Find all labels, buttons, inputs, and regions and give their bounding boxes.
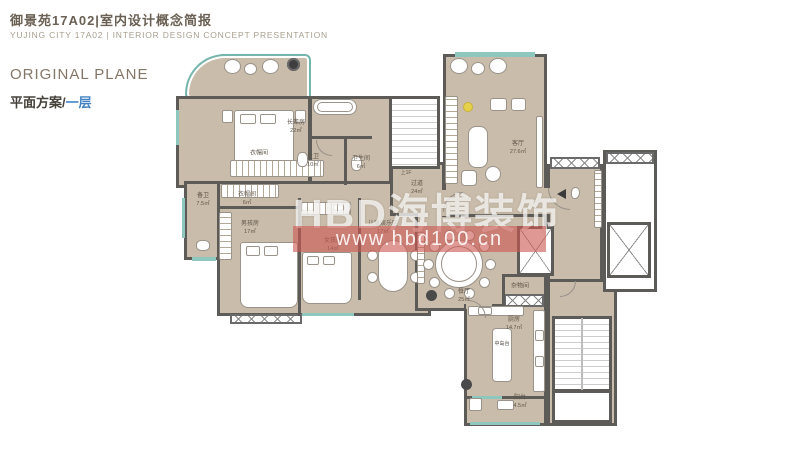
girl-bed-pillow-2 — [323, 256, 335, 265]
kitchen-counter-right — [533, 310, 545, 392]
living-side-table-1 — [490, 98, 507, 111]
room-label-dining-room: 餐厅25㎡ — [458, 289, 470, 303]
stair-up-label: 上1F — [401, 170, 412, 176]
balcony-table — [244, 63, 257, 75]
toilet-spare — [196, 240, 210, 251]
room-label-balcony: 阳台4.5㎡ — [513, 395, 526, 409]
dining-chair — [479, 277, 490, 288]
living-armchair-1 — [450, 58, 468, 74]
room-label-cloakroom-1: 衣帽间 — [250, 150, 268, 158]
elder-bed-pillow-2 — [260, 114, 276, 124]
stair-landing — [552, 390, 612, 423]
boy-bed-pillow-2 — [264, 246, 278, 256]
living-side-table-2 — [511, 98, 526, 111]
cooktop-2 — [535, 356, 544, 367]
dining-chair — [485, 259, 496, 270]
cooktop-1 — [535, 330, 544, 341]
ceiling-fan-icon — [287, 58, 300, 71]
dining-chair — [429, 277, 440, 288]
room-label-kitchen: 厨房14.7㎡ — [506, 317, 522, 331]
dining-chair — [444, 288, 455, 299]
stool-icon — [426, 290, 437, 301]
washing-machine — [469, 398, 482, 411]
coffee-table — [468, 126, 488, 168]
play-chair-2 — [367, 272, 378, 283]
window-balcony-bottom — [470, 422, 540, 425]
girl-bed-pillow-1 — [307, 256, 319, 265]
slide-subtitle: YUJING CITY 17A02 | INTERIOR DESIGN CONC… — [10, 30, 328, 40]
room-label-elder-bedroom: 长辈房22㎡ — [287, 120, 305, 134]
stool-icon-2 — [461, 379, 472, 390]
window-living-top — [455, 52, 535, 57]
presentation-slide: 御景苑17A02|室内设计概念简报 YUJING CITY 17A02 | IN… — [0, 0, 800, 450]
elder-bed-pillow-1 — [240, 114, 256, 124]
wall-bath-split — [344, 138, 347, 185]
living-shelf — [445, 96, 458, 184]
balcony-armchair-2 — [262, 59, 279, 74]
room-label-bathroom: 卫生间6㎡ — [352, 156, 370, 170]
floor-lamp — [463, 102, 473, 112]
wall-storage-h — [502, 274, 547, 277]
dining-chair — [423, 259, 434, 270]
nightstand-left — [222, 110, 233, 123]
window-bath-bottom — [192, 257, 216, 261]
watermark-band: www.hbd100.cn — [293, 226, 546, 252]
window-bath-left — [182, 198, 185, 238]
right-wing-grille — [606, 152, 654, 164]
section-title-zh: 平面方案/一层 — [10, 92, 92, 111]
window-girl-bottom — [302, 313, 354, 316]
window-suite-left — [176, 110, 179, 145]
island-label: 中岛台 — [494, 341, 509, 347]
kitchen-island — [492, 328, 512, 382]
shoe-cabinet — [594, 170, 602, 228]
slide-title: 御景苑17A02|室内设计概念简报 — [10, 10, 212, 29]
wall-cloak-boy — [217, 206, 301, 209]
stair-divider — [581, 318, 583, 390]
interior-staircase — [389, 96, 440, 169]
living-armchair-2 — [489, 58, 507, 74]
bathtub-inner — [317, 102, 353, 112]
boy-wardrobe — [219, 212, 232, 260]
room-label-storage: 杂物间 — [511, 283, 529, 291]
entry-vent-grille — [550, 157, 600, 169]
room-label-cloakroom-2: 衣帽间6㎡ — [238, 192, 256, 206]
boy-bed-pillow-1 — [246, 246, 260, 256]
balcony-table — [497, 400, 514, 410]
section-title-en: ORIGINAL PLANE — [10, 66, 148, 83]
wall-tub-bath — [308, 136, 372, 139]
watermark-url: www.hbd100.cn — [336, 228, 503, 251]
living-side-table-small — [471, 62, 485, 75]
room-label-spare-bath: 备卫7.5㎡ — [196, 193, 209, 207]
tv-bench — [536, 116, 543, 188]
balcony-armchair-1 — [224, 59, 241, 74]
boy-room-grille — [230, 314, 302, 324]
room-label-living-room: 客厅27.6㎡ — [510, 141, 526, 155]
section-title-zh-prefix: 平面方案/ — [10, 95, 66, 110]
section-title-zh-accent: 一层 — [66, 95, 92, 110]
elevator-shaft-right — [607, 222, 651, 278]
room-label-boys-room: 男孩房17㎡ — [241, 221, 259, 235]
room-label-master-bath: 主卫10㎡ — [307, 154, 319, 168]
